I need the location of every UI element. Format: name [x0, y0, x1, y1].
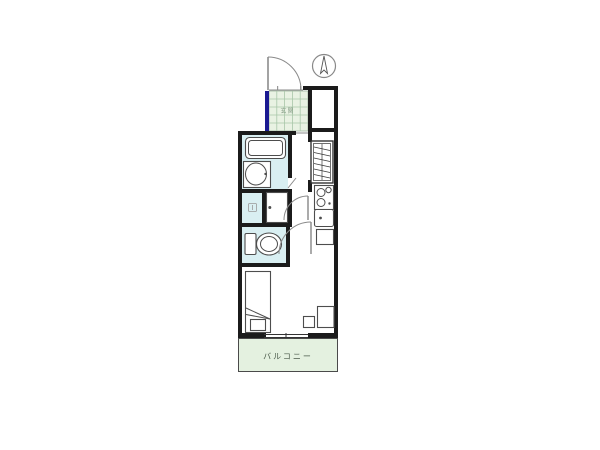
wall-segment: [288, 131, 292, 178]
kitchen-sink-icon: [315, 210, 334, 227]
wall-segment: [262, 193, 266, 223]
wall-segment: [334, 86, 338, 338]
closet-icon: [311, 141, 333, 183]
bath-door-line: [288, 178, 296, 188]
balcony-label: バルコニー: [238, 351, 338, 362]
balcony-window-icon: [264, 333, 308, 338]
kitchen-counter-icon: [317, 230, 334, 245]
floor-plan-drawing: [0, 0, 600, 450]
door-frame-tick: [277, 86, 278, 90]
chair-icon: [304, 317, 315, 328]
wall-segment: [238, 333, 266, 338]
wall-segment: [308, 333, 338, 338]
wall-segment: [308, 128, 338, 132]
entrance-label: 玄関: [267, 106, 308, 115]
bed-icon: [246, 272, 271, 333]
washing-machine-room-floor: [242, 193, 262, 223]
entrance-door-icon: [268, 57, 301, 90]
wall-segment: [308, 86, 312, 132]
wall-segment: [238, 263, 290, 267]
wall-segment: [238, 131, 296, 135]
desk-icon: [318, 307, 335, 328]
bathtub-icon: [246, 138, 286, 159]
compass-icon: [313, 55, 336, 78]
washbasin-icon: [244, 162, 271, 188]
toilet-icon: [245, 233, 282, 255]
stove-icon: [315, 186, 334, 210]
wall-segment: [238, 131, 242, 338]
wall-segment: [238, 223, 292, 227]
wall-segment: [288, 189, 292, 227]
floor-plan: バルコニー 玄関: [0, 0, 600, 450]
